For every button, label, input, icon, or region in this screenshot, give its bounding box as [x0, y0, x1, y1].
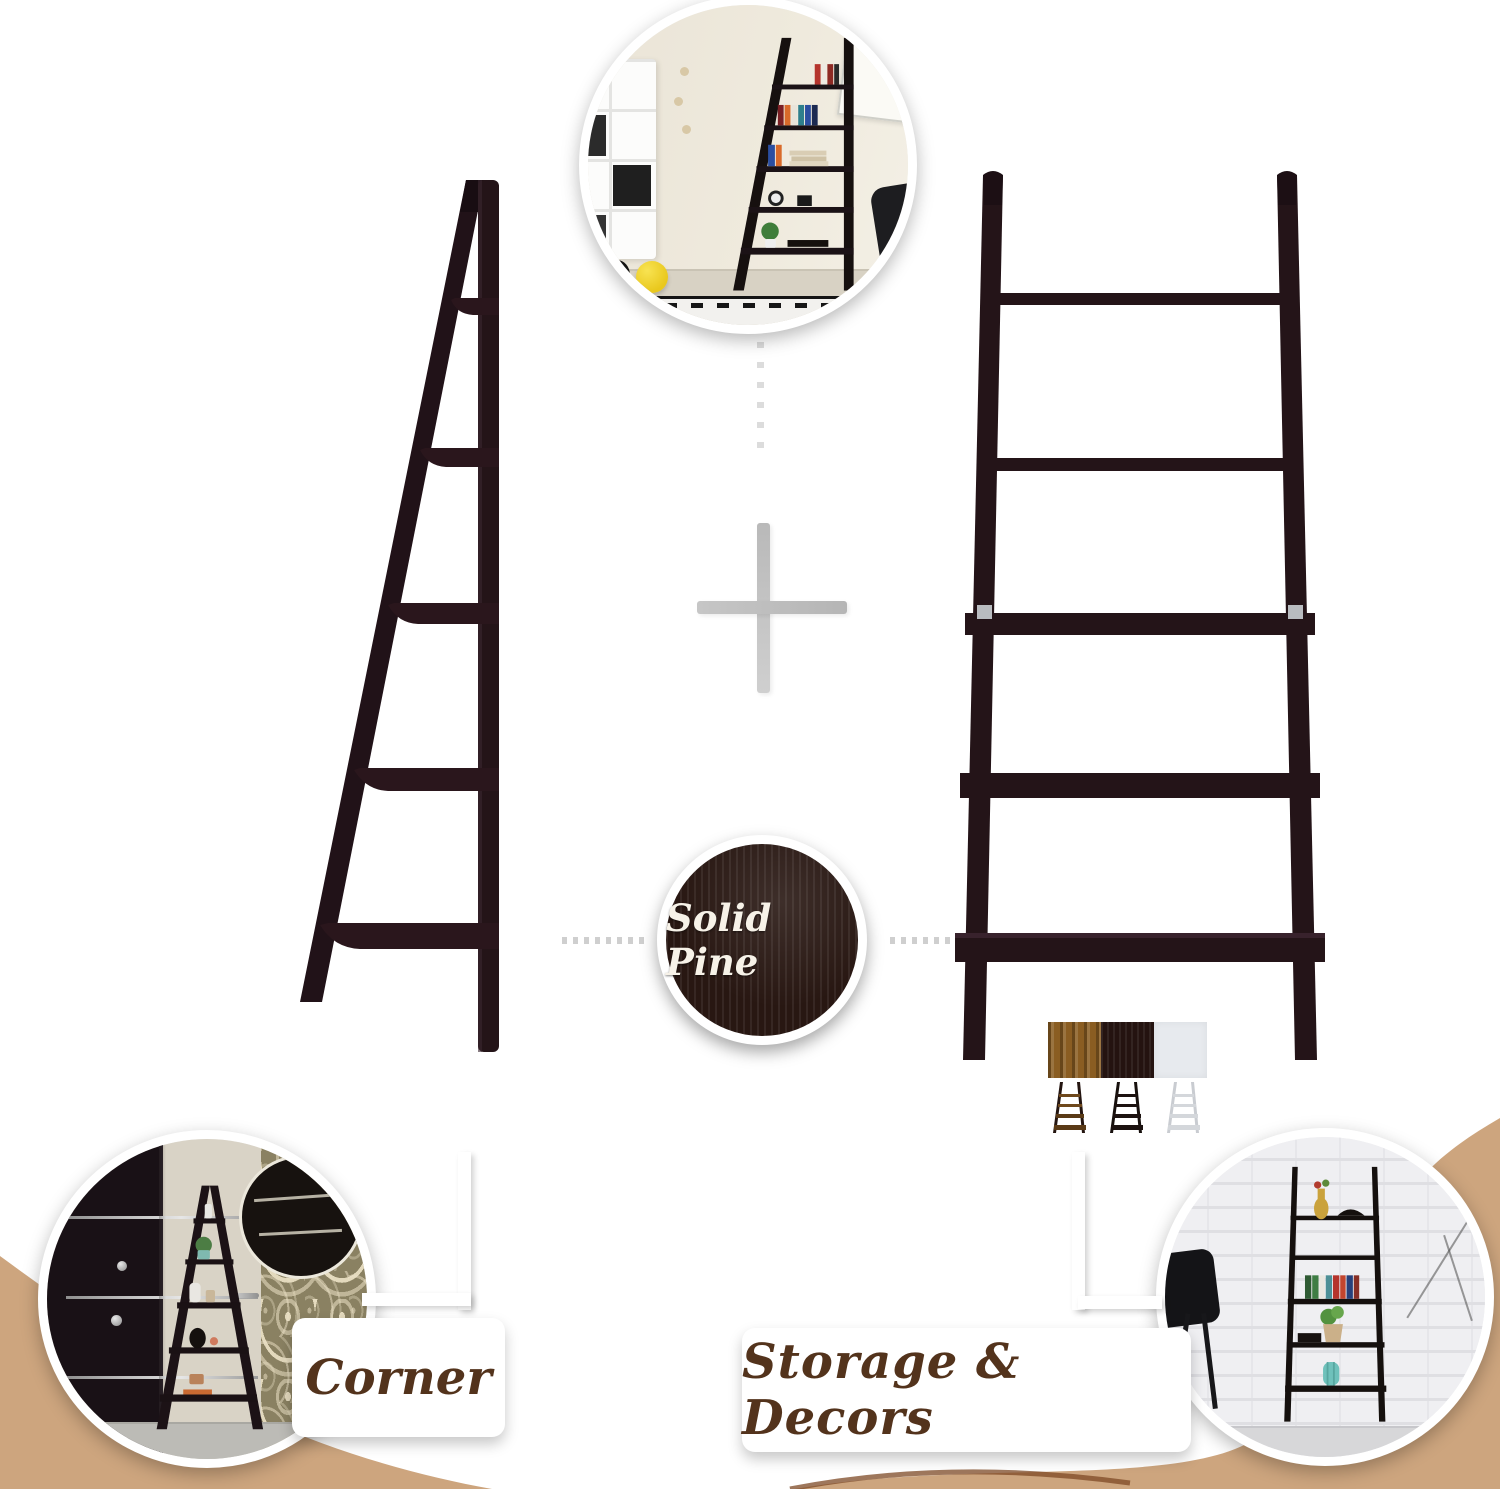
finish-swatches — [1048, 1022, 1207, 1078]
mini-ladder-espresso-icon — [1109, 1080, 1145, 1135]
badge-label: Solid Pine — [666, 896, 858, 984]
ladder-shelf-with-decor — [1258, 1153, 1412, 1441]
connector-left-vertical — [458, 1152, 471, 1310]
connector-right-horizontal — [1078, 1296, 1162, 1309]
product-infographic: Solid Pine — [0, 0, 1500, 1489]
eight-ball — [604, 260, 630, 290]
callout-storage-label: Storage & Decors — [742, 1334, 1191, 1446]
white-cubby-shelf — [579, 59, 656, 259]
brick-wall-scene — [1165, 1137, 1485, 1457]
lifestyle-photo-top — [579, 0, 917, 334]
mini-ladder-white-icon — [1166, 1080, 1202, 1135]
lifestyle-photo-storage — [1156, 1128, 1494, 1466]
wall-knob — [682, 125, 691, 134]
swatch-walnut — [1048, 1022, 1101, 1078]
connector-right-vertical — [1072, 1152, 1085, 1310]
branch — [1444, 1235, 1474, 1321]
finish-mini-ladders — [1052, 1080, 1202, 1135]
yellow-ball — [636, 261, 668, 293]
ladder-shelf-with-books — [716, 34, 882, 296]
dotted-line-left — [562, 937, 650, 944]
dotted-line-right — [890, 937, 962, 944]
wall-knob — [680, 67, 689, 76]
callout-corner: Corner — [292, 1318, 505, 1437]
patterned-rug — [639, 296, 857, 325]
mini-ladder-walnut-icon — [1052, 1080, 1088, 1135]
callout-storage: Storage & Decors — [742, 1328, 1191, 1452]
wall-knob — [674, 97, 683, 106]
dotted-line-vertical — [757, 342, 764, 448]
swatch-white — [1154, 1022, 1207, 1078]
corner-shelf-with-decor — [130, 1171, 284, 1440]
room-scene — [588, 5, 908, 325]
callout-corner-label: Corner — [305, 1350, 491, 1406]
connector-left-horizontal — [362, 1293, 471, 1306]
material-badge: Solid Pine — [657, 835, 867, 1045]
ladder-bookshelf-product — [955, 165, 1325, 1065]
plus-icon — [697, 601, 847, 614]
branch — [1407, 1216, 1472, 1319]
swatch-espresso — [1101, 1022, 1154, 1078]
corner-ladder-shelf-product — [288, 172, 508, 1062]
